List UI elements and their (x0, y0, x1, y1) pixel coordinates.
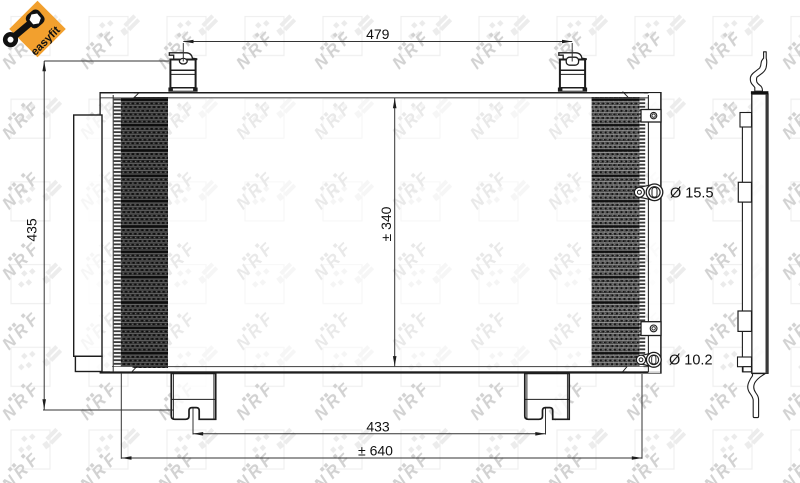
svg-text:435: 435 (24, 218, 40, 242)
svg-text:± 640: ± 640 (358, 443, 393, 459)
svg-text:Ø 15.5: Ø 15.5 (670, 185, 714, 201)
svg-text:± 340: ± 340 (378, 206, 394, 241)
svg-text:433: 433 (366, 418, 390, 434)
svg-text:Ø 10.2: Ø 10.2 (669, 353, 713, 369)
svg-text:479: 479 (366, 26, 390, 42)
